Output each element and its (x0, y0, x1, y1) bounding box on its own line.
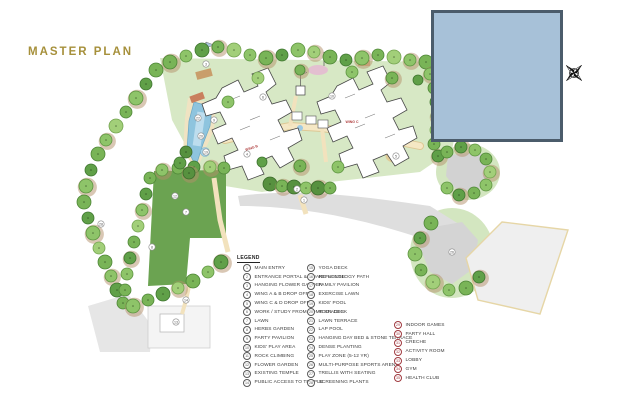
tree-center-dot (446, 151, 448, 153)
tree-center-dot (393, 56, 395, 58)
legend-item: 34GYM (394, 365, 445, 374)
tree-center-dot (377, 54, 379, 56)
legend-item-label: WING A & B DROP OFF (255, 292, 309, 297)
legend-item: 16REFLEXOLOGY PATH (307, 273, 412, 282)
legend-item-number: 16 (307, 273, 315, 281)
tree-center-dot (149, 177, 151, 179)
legend-item-number: 29 (394, 321, 402, 329)
tree-center-dot (126, 273, 128, 275)
plan-marker-number: 1 (303, 198, 305, 202)
legend-item-number: 14 (243, 379, 251, 387)
tree-center-dot (351, 71, 353, 73)
tree-center-dot (337, 166, 339, 168)
tree-center-dot (458, 194, 460, 196)
legend-item-number: 34 (394, 365, 402, 373)
legend-item-number: 6 (243, 308, 251, 316)
legend-item-number: 12 (243, 361, 251, 369)
tree-center-dot (329, 187, 331, 189)
legend-item-label: FAMILY PAVILION (319, 283, 360, 288)
legend-item: 35HEALTH CLUB (394, 374, 445, 383)
legend-item-label: LOBBY (406, 358, 423, 363)
tree-center-dot (419, 237, 421, 239)
tree-center-dot (474, 149, 476, 151)
plan-marker-number: 22 (196, 116, 200, 120)
tree-center-dot (473, 192, 475, 194)
wing-label: WING C (345, 120, 358, 124)
plan-marker-number: 3 (205, 62, 207, 66)
legend-item-label: KIDS' PLAY AREA (255, 345, 296, 350)
legend-item-number: 35 (394, 374, 402, 382)
plan-marker-number: 20 (199, 134, 203, 138)
tree-center-dot (478, 276, 480, 278)
tree-center-dot (155, 69, 157, 71)
tree-center-dot (207, 271, 209, 273)
tree-center-dot (420, 269, 422, 271)
legend-item-number: 23 (307, 335, 315, 343)
legend-item: 31CRECHE (394, 339, 445, 348)
master-plan-page: MASTER PLAN (0, 0, 618, 404)
tree-center-dot (105, 139, 107, 141)
tree-center-dot (129, 257, 131, 259)
tree-center-dot (209, 166, 211, 168)
tree-center-dot (185, 151, 187, 153)
plan-marker-number: 4 (246, 152, 248, 156)
tree-center-dot (489, 171, 491, 173)
plan-marker-number: 19 (204, 150, 208, 154)
legend-item-label: POOL DECK (319, 310, 348, 315)
tree-center-dot (313, 51, 315, 53)
tree-center-dot (460, 146, 462, 148)
legend-item-label: PARTY HALL (406, 332, 436, 337)
legend-item-number: 11 (243, 352, 251, 360)
tree-center-dot (317, 187, 319, 189)
tree-center-dot (345, 59, 347, 61)
legend-item-label: WING C & D DROP OFF (255, 301, 310, 306)
legend-item-number: 19 (307, 300, 315, 308)
legend-item-number: 18 (307, 291, 315, 299)
tree-center-dot (433, 143, 435, 145)
tree-center-dot (227, 101, 229, 103)
tree-center-dot (297, 49, 299, 51)
tree-center-dot (92, 232, 94, 234)
legend-item-number: 33 (394, 357, 402, 365)
tree-center-dot (162, 293, 164, 295)
tree-center-dot (329, 56, 331, 58)
legend-item: 19KIDS' POOL (307, 299, 412, 308)
legend-item-number: 8 (243, 326, 251, 334)
legend-item: 32ACTIVITY ROOM (394, 347, 445, 356)
tree-center-dot (249, 54, 251, 56)
legend-item-label: YOGA DECK (319, 266, 348, 271)
legend-item-number: 30 (394, 330, 402, 338)
legend-item-number: 26 (307, 361, 315, 369)
tree-center-dot (125, 111, 127, 113)
tree-center-dot (132, 305, 134, 307)
legend-item-number: 10 (243, 344, 251, 352)
legend-item: 18EXERCISE LAWN (307, 290, 412, 299)
plan-marker-number: 2 (296, 187, 298, 191)
legend-item-number: 4 (243, 291, 251, 299)
legend-item-label: EXERCISE LAWN (319, 292, 360, 297)
tree-center-dot (137, 225, 139, 227)
tree-center-dot (124, 289, 126, 291)
legend-item-number: 32 (394, 348, 402, 356)
plan-marker-number: 10 (330, 94, 334, 98)
legend-item-number: 21 (307, 317, 315, 325)
legend-item-number: 2 (243, 273, 251, 281)
inset-placeholder-box (431, 10, 563, 142)
tree-center-dot (122, 302, 124, 304)
legend-item-number: 25 (307, 352, 315, 360)
flower-bed-pink (308, 65, 328, 75)
tree-icon (295, 65, 305, 75)
legend-item-label: PLAY ZONE (5-12 YR) (319, 354, 369, 359)
plan-marker-number: 13 (174, 320, 178, 324)
legend-item-number: 5 (243, 300, 251, 308)
tree-center-dot (177, 287, 179, 289)
legend-item-number: 3 (243, 282, 251, 290)
tree-icon (413, 75, 423, 85)
plan-marker-number: 6 (262, 95, 264, 99)
legend-item-number: 13 (243, 370, 251, 378)
legend-item-number: 15 (307, 264, 315, 272)
tree-center-dot (391, 77, 393, 79)
legend-item-label: PARTY PAVILION (255, 336, 295, 341)
legend-item-label: LAWN TERRACE (319, 319, 358, 324)
tree-center-dot (192, 280, 194, 282)
legend-item-label: INDOOR GAMES (406, 323, 445, 328)
tree-center-dot (414, 253, 416, 255)
tree-center-dot (201, 49, 203, 51)
tree-icon (257, 157, 267, 167)
legend-column-3: 29INDOOR GAMES30PARTY HALL31CRECHE32ACTI… (394, 321, 445, 383)
legend-item-number: 9 (243, 335, 251, 343)
legend-item-label: ROCK CLIMBING (255, 354, 295, 359)
tree-center-dot (145, 193, 147, 195)
tree-center-dot (265, 57, 267, 59)
tree-center-dot (220, 261, 222, 263)
legend-item-label: MAIN ENTRY (255, 266, 286, 271)
tree-center-dot (257, 77, 259, 79)
legend-item-label: LAWN (255, 319, 269, 324)
legend-item-number: 28 (307, 379, 315, 387)
tree-center-dot (169, 61, 171, 63)
legend-item-label: REFLEXOLOGY PATH (319, 275, 370, 280)
legend-item: 20POOL DECK (307, 308, 412, 317)
tree-center-dot (233, 49, 235, 51)
compass-icon (562, 61, 586, 85)
tree-center-dot (281, 185, 283, 187)
compass-star (565, 64, 584, 83)
tree-center-dot (430, 222, 432, 224)
tree-center-dot (185, 55, 187, 57)
tree-center-dot (425, 61, 427, 63)
tree-center-dot (361, 57, 363, 59)
tree-center-dot (188, 172, 190, 174)
tree-center-dot (141, 209, 143, 211)
plan-marker-number: 14 (184, 298, 188, 302)
tree-center-dot (87, 217, 89, 219)
tree-center-dot (110, 275, 112, 277)
tree-center-dot (115, 125, 117, 127)
legend-item: 30PARTY HALL (394, 330, 445, 339)
tree-center-dot (104, 261, 106, 263)
legend-item-label: TRELLIS WITH SEATING (319, 371, 376, 376)
legend-item-number: 27 (307, 370, 315, 378)
legend-item-label: KIDS' POOL (319, 301, 347, 306)
tree-center-dot (90, 169, 92, 171)
plan-marker-number: 8 (151, 245, 153, 249)
legend-item-number: 22 (307, 326, 315, 334)
plan-marker-number: 26 (450, 250, 454, 254)
tree-center-dot (97, 153, 99, 155)
tree-center-dot (485, 158, 487, 160)
temple-building (160, 314, 184, 332)
legend-item-label: CRECHE (406, 340, 427, 345)
legend-item-number: 7 (243, 317, 251, 325)
legend-item-number: 31 (394, 339, 402, 347)
legend-item-label: HERBS GARDEN (255, 327, 295, 332)
legend-item-number: 17 (307, 282, 315, 290)
legend-item-label: ACTIVITY ROOM (406, 349, 445, 354)
tree-center-dot (432, 281, 434, 283)
legend-item-label: HEALTH CLUB (406, 376, 440, 381)
tree-center-dot (448, 289, 450, 291)
tree-center-dot (116, 289, 118, 291)
tree-center-dot (465, 287, 467, 289)
tree-center-dot (161, 169, 163, 171)
plan-marker-number: 28 (99, 222, 103, 226)
legend-item-label: EXISTING TEMPLE (255, 371, 299, 376)
tree-center-dot (147, 299, 149, 301)
tree-center-dot (281, 54, 283, 56)
tree-center-dot (305, 187, 307, 189)
tree-center-dot (223, 167, 225, 169)
legend-item-label: MULTI-PURPOSE SPORTS ARENA (319, 363, 399, 368)
tree-center-dot (446, 187, 448, 189)
tree-center-dot (135, 97, 137, 99)
tree-center-dot (179, 162, 181, 164)
legend-item-number: 24 (307, 344, 315, 352)
legend-item-label: FLOWER GARDEN (255, 363, 299, 368)
tree-center-dot (83, 201, 85, 203)
tree-center-dot (269, 183, 271, 185)
tree-center-dot (133, 241, 135, 243)
tree-center-dot (409, 59, 411, 61)
plan-marker-number: 5 (395, 154, 397, 158)
legend-item-number: 1 (243, 264, 251, 272)
tree-center-dot (98, 247, 100, 249)
plan-marker-number: 9 (213, 118, 215, 122)
plan-marker-number: 7 (185, 210, 187, 214)
tree-center-dot (299, 165, 301, 167)
plan-marker-number: 12 (173, 194, 177, 198)
legend-item-number: 20 (307, 308, 315, 316)
tree-center-dot (85, 185, 87, 187)
legend-item-label: GYM (406, 367, 417, 372)
legend-header: LEGEND (237, 255, 260, 263)
legend-item: 17FAMILY PAVILION (307, 282, 412, 291)
legend-item: 33LOBBY (394, 356, 445, 365)
tree-center-dot (217, 46, 219, 48)
legend-item-label: DENSE PLANTING (319, 345, 362, 350)
legend-item: 15YOGA DECK (307, 264, 412, 273)
legend-item: 29INDOOR GAMES (394, 321, 445, 330)
tree-center-dot (437, 155, 439, 157)
legend-item-label: SCREENING PLANTS (319, 380, 369, 385)
legend-item-label: LAP POOL (319, 327, 343, 332)
tree-center-dot (145, 83, 147, 85)
tree-center-dot (485, 184, 487, 186)
